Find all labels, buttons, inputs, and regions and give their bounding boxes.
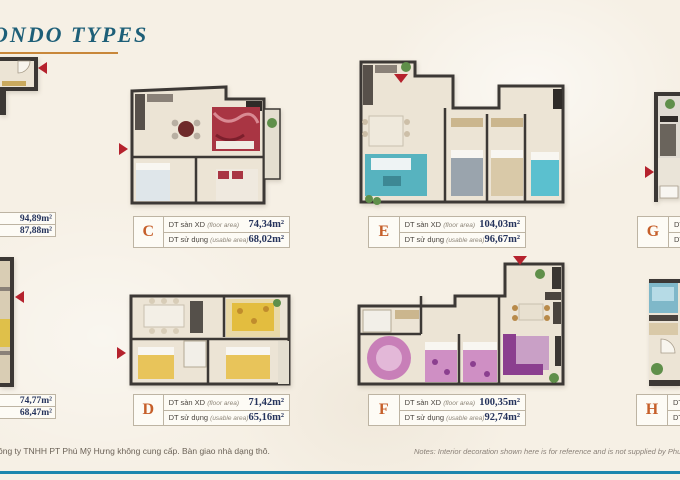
unit-left-bottom-info: 74,77m² 68,47m²	[0, 394, 56, 419]
usable-area-value: 65,16m²	[248, 412, 284, 423]
floor-plan-e	[357, 56, 568, 208]
usable-area-row: DT sử dụng (usable area) 68,02m²	[164, 232, 289, 248]
floor-area-row: DT sàn XD (floor area) 104,03m²	[400, 217, 525, 232]
usable-area-sublabel: (usable area)	[210, 415, 248, 422]
usable-area-value: 87,88m²	[0, 224, 56, 237]
sofa	[371, 158, 411, 170]
usable-area-row: DT sử dụng (usable area)	[668, 410, 680, 426]
wardrobe	[491, 118, 523, 127]
unit-d-letter: D	[134, 395, 164, 425]
dining-table	[144, 305, 184, 327]
usable-area-value: 96,67m²	[484, 234, 520, 245]
dining-table	[519, 304, 543, 320]
floor-plan-h-partial	[649, 279, 680, 386]
floor-area-sublabel: (floor area)	[207, 400, 239, 407]
bed-partial	[0, 319, 10, 347]
floor-area-label: DT sàn XD	[673, 398, 680, 407]
tv-cabinet	[555, 336, 561, 366]
unit-g-info: G DT sàn XD (floor area) DT sử dụng (usa…	[637, 216, 680, 248]
floor-area-label: DT sàn XD	[405, 220, 442, 229]
dining-table	[369, 116, 403, 146]
page-title: ONDO TYPES	[0, 22, 148, 48]
usable-area-sublabel: (usable area)	[446, 415, 484, 422]
floor-area-value: 100,35m²	[479, 397, 520, 408]
wardrobe	[451, 118, 483, 127]
plant	[535, 269, 545, 279]
bathroom	[363, 310, 391, 332]
floor-plan-d	[128, 291, 292, 389]
unit-h-info: H DT sàn XD (floor area) DT sử dụng (usa…	[636, 394, 680, 426]
floor-plan-f	[355, 256, 570, 392]
usable-area-label: DT sử dụng	[405, 235, 445, 244]
plant	[665, 99, 675, 109]
entry-arrow-g	[645, 166, 654, 178]
balcony	[278, 341, 289, 384]
wardrobe	[395, 310, 419, 319]
unit-c-letter: C	[134, 217, 164, 247]
floor-area-value: 104,03m²	[479, 219, 520, 230]
floor-area-sublabel: (floor area)	[443, 222, 475, 229]
sofa	[503, 364, 543, 375]
wardrobe	[553, 89, 562, 109]
cabinet	[2, 81, 26, 86]
unit-f-letter: F	[369, 395, 400, 425]
usable-area-label: DT sử dụng	[674, 235, 680, 244]
counter	[649, 315, 678, 321]
unit-d-info: D DT sàn XD (floor area) 71,42m² DT sử d…	[133, 394, 290, 426]
floor-area-label: DT sàn XD	[169, 220, 206, 229]
plant	[365, 195, 373, 203]
floor-area-sublabel: (floor area)	[207, 222, 239, 229]
entry-arrow-left-top	[38, 62, 47, 74]
unit-h-letter: H	[637, 395, 668, 425]
floor-area-row: DT sàn XD (floor area)	[669, 217, 680, 232]
entry-arrow-c	[119, 143, 128, 155]
footer-note-english: Notes: Interior decoration shown here is…	[414, 447, 680, 456]
usable-area-label: DT sử dụng	[673, 413, 680, 422]
floor-plan-left-bottom-partial	[0, 257, 15, 387]
kitchen-counter	[190, 301, 203, 333]
coffee-table	[383, 176, 401, 186]
unit-e-info: E DT sàn XD (floor area) 104,03m² DT sử …	[368, 216, 526, 248]
floor-plan-left-top-partial	[0, 57, 42, 115]
background-texture	[0, 0, 680, 480]
usable-area-label: DT sử dụng	[405, 413, 445, 422]
floor-area-label: DT sàn XD	[405, 398, 442, 407]
shoe-cabinet	[552, 267, 561, 289]
entry-arrow-f	[513, 256, 527, 265]
unit-c-info: C DT sàn XD (floor area) 74,34m² DT sử d…	[133, 216, 290, 248]
floor-area-label: DT sàn XD	[674, 220, 680, 229]
usable-area-row: DT sử dụng (usable area) 96,67m²	[400, 232, 525, 248]
sofa	[216, 141, 254, 149]
usable-area-value: 68,02m²	[248, 234, 284, 245]
usable-area-label: DT sử dụng	[169, 413, 209, 422]
entry-arrow-left-bottom	[15, 291, 24, 303]
footer-note-vietnamese: ông ty TNHH PT Phú Mỹ Hưng không cung cấ…	[0, 446, 270, 456]
usable-area-value: 92,74m²	[484, 412, 520, 423]
fixture	[660, 186, 678, 198]
floor-area-value: 71,42m²	[248, 397, 284, 408]
plant	[549, 373, 559, 383]
floor-area-value: 74,34m²	[248, 219, 284, 230]
usable-area-value: 68,47m²	[0, 406, 56, 419]
usable-area-sublabel: (usable area)	[210, 237, 248, 244]
kitchen-counter	[375, 65, 397, 73]
kitchen-counter	[545, 292, 561, 300]
plant	[267, 118, 277, 128]
plant	[401, 62, 411, 72]
kitchen-counter	[135, 94, 145, 130]
unit-g-letter: G	[638, 217, 669, 247]
kitchen-counter	[553, 302, 561, 324]
unit-left-top-info: 94,89m² 87,88m²	[0, 212, 56, 237]
floor-area-sublabel: (floor area)	[443, 400, 475, 407]
kitchen-counter	[660, 124, 676, 156]
title-underline	[0, 52, 118, 54]
floor-plan-g-partial	[654, 92, 680, 202]
usable-area-sublabel: (usable area)	[446, 237, 484, 244]
cabinet	[649, 323, 678, 335]
brochure-page: ONDO TYPES	[0, 0, 680, 480]
kitchen-counter	[147, 94, 173, 102]
plant	[651, 363, 663, 375]
entry-arrow-d	[117, 347, 126, 359]
floor-area-label: DT sàn XD	[169, 398, 206, 407]
floor-plan-c	[128, 83, 296, 207]
plant	[373, 197, 381, 205]
entry-arrow-e	[394, 74, 408, 83]
footer-divider-line	[0, 471, 680, 474]
usable-area-row: DT sử dụng (usable area) 92,74m²	[400, 410, 525, 426]
usable-area-row: DT sử dụng (usable area)	[669, 232, 680, 248]
unit-e-letter: E	[369, 217, 400, 247]
cabinet	[660, 116, 678, 122]
floor-area-row: DT sàn XD (floor area) 74,34m²	[164, 217, 289, 232]
floor-area-row: DT sàn XD (floor area) 100,35m²	[400, 395, 525, 410]
floor-area-row: DT sàn XD (floor area) 71,42m²	[164, 395, 289, 410]
bathroom	[184, 341, 206, 367]
dining-table	[178, 121, 194, 137]
floor-area-row: DT sàn XD (floor area)	[668, 395, 680, 410]
plant	[273, 299, 281, 307]
usable-area-label: DT sử dụng	[169, 235, 209, 244]
unit-f-info: F DT sàn XD (floor area) 100,35m² DT sử …	[368, 394, 526, 426]
kitchen-counter	[363, 65, 373, 105]
usable-area-row: DT sử dụng (usable area) 65,16m²	[164, 410, 289, 426]
